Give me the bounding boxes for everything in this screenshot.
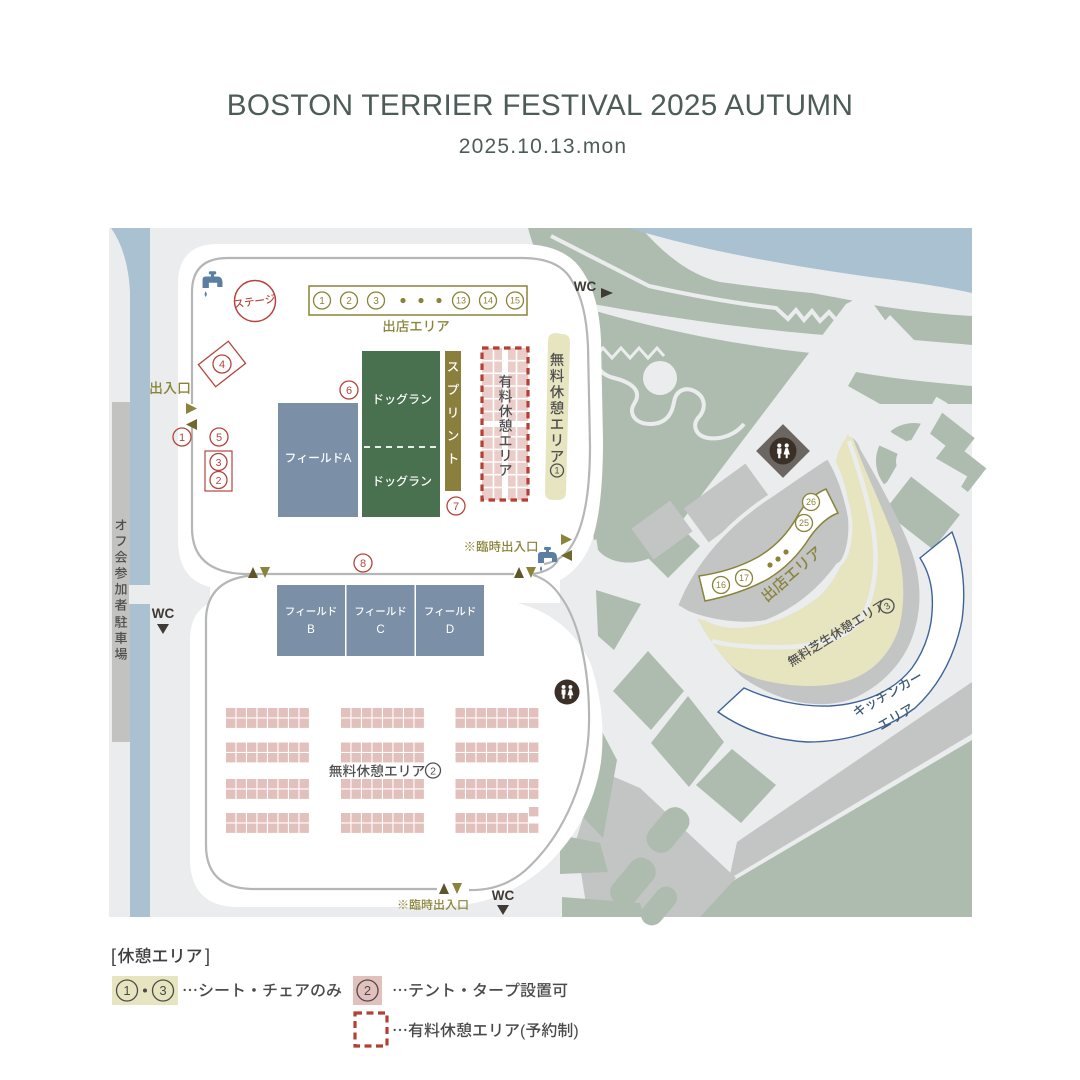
svg-text:5: 5	[216, 432, 222, 444]
svg-text:WC: WC	[492, 888, 515, 903]
svg-text:]: ]	[205, 946, 210, 966]
svg-text:A: A	[344, 451, 352, 465]
svg-text:3: 3	[373, 296, 379, 307]
svg-text:2: 2	[216, 475, 222, 487]
svg-text:2: 2	[430, 765, 436, 777]
svg-text:13: 13	[456, 296, 466, 306]
svg-text:17: 17	[739, 573, 749, 583]
svg-text:1: 1	[319, 296, 325, 307]
svg-text:C: C	[376, 624, 384, 636]
svg-text:): )	[573, 1023, 578, 1040]
svg-text:26: 26	[806, 497, 816, 507]
svg-text:WC: WC	[574, 279, 597, 294]
svg-text:2025.10.13.mon: 2025.10.13.mon	[459, 135, 628, 158]
svg-text:1: 1	[554, 466, 559, 476]
svg-text:(: (	[520, 1023, 526, 1040]
svg-text:6: 6	[346, 385, 352, 397]
svg-text:14: 14	[483, 296, 493, 306]
svg-text:2: 2	[346, 296, 352, 307]
svg-text:1: 1	[179, 432, 185, 444]
svg-text:D: D	[446, 624, 454, 636]
svg-text:2: 2	[364, 983, 371, 998]
svg-text:16: 16	[716, 580, 726, 590]
svg-text:BOSTON TERRIER FESTIVAL 2025 A: BOSTON TERRIER FESTIVAL 2025 AUTUMN	[227, 89, 853, 122]
svg-text:7: 7	[453, 501, 459, 513]
svg-text:15: 15	[510, 296, 520, 306]
svg-text:1: 1	[123, 983, 130, 998]
svg-text:B: B	[307, 624, 315, 636]
svg-text:3: 3	[159, 983, 166, 998]
svg-text:WC: WC	[152, 606, 175, 621]
svg-text:3: 3	[216, 457, 222, 469]
svg-text:4: 4	[219, 359, 225, 371]
svg-text:25: 25	[799, 518, 809, 528]
svg-text:[: [	[111, 946, 116, 966]
svg-text:8: 8	[360, 558, 366, 570]
